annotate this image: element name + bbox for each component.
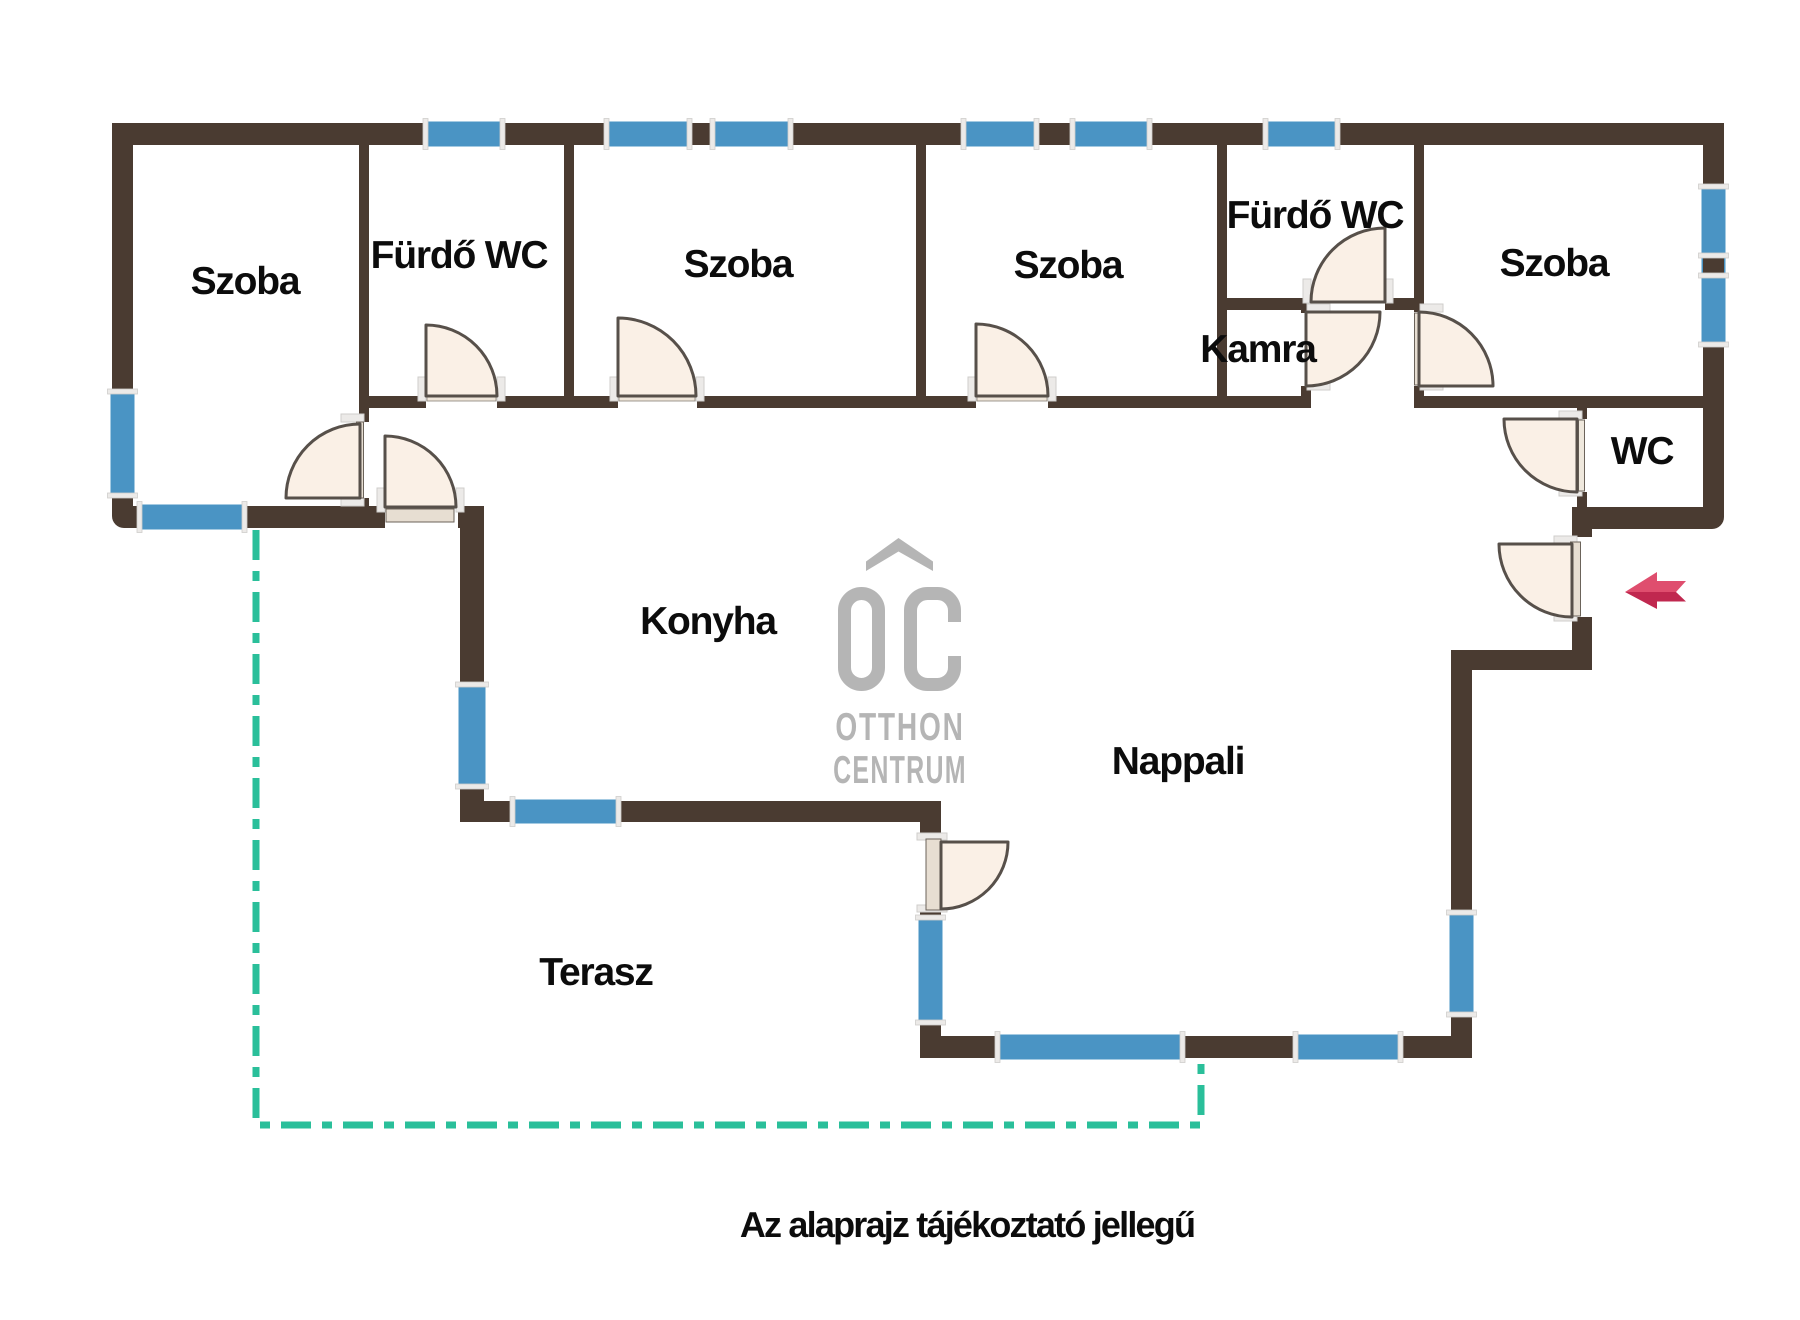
svg-text:Szoba: Szoba (684, 243, 794, 286)
svg-text:Kamra: Kamra (1200, 328, 1317, 371)
svg-text:Szoba: Szoba (1014, 244, 1124, 287)
svg-text:Az alaprajz tájékoztató jelleg: Az alaprajz tájékoztató jellegű (740, 1204, 1194, 1245)
svg-text:Szoba: Szoba (1500, 242, 1610, 285)
svg-text:Fürdő WC: Fürdő WC (371, 234, 549, 277)
svg-text:Konyha: Konyha (640, 600, 777, 643)
svg-text:Szoba: Szoba (191, 260, 301, 303)
svg-text:OTTHON: OTTHON (835, 706, 964, 749)
svg-text:Fürdő WC: Fürdő WC (1227, 194, 1405, 237)
svg-text:Nappali: Nappali (1112, 740, 1244, 783)
svg-text:Terasz: Terasz (539, 951, 653, 994)
svg-text:WC: WC (1611, 430, 1675, 473)
svg-text:CENTRUM: CENTRUM (833, 749, 967, 792)
